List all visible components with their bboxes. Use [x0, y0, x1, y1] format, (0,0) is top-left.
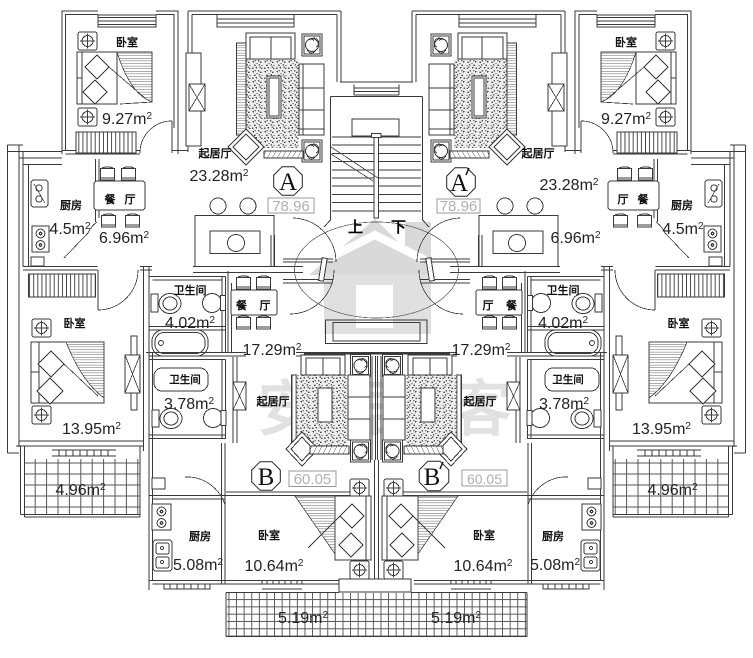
svg-text:10.64m2: 10.64m2	[454, 558, 513, 575]
svg-text:13.95m2: 13.95m2	[632, 421, 691, 438]
svg-text:餐: 餐	[235, 298, 248, 312]
svg-text:厅: 厅	[260, 299, 271, 312]
svg-text:卧室: 卧室	[668, 316, 690, 330]
svg-text:5.19m2: 5.19m2	[278, 610, 328, 627]
svg-text:起居厅: 起居厅	[521, 146, 555, 160]
svg-text:5.08m2: 5.08m2	[173, 557, 223, 574]
svg-text:10.64m2: 10.64m2	[245, 558, 304, 575]
svg-text:9.27m2: 9.27m2	[601, 111, 651, 128]
svg-text:卫生间: 卫生间	[174, 283, 207, 297]
svg-text:60.05: 60.05	[294, 471, 332, 488]
svg-text:下: 下	[391, 219, 406, 236]
svg-text:起居厅: 起居厅	[198, 146, 232, 160]
svg-text:厨房: 厨房	[60, 198, 82, 212]
svg-text:5.08m2: 5.08m2	[530, 557, 580, 574]
svg-text:17.29m2: 17.29m2	[452, 342, 511, 359]
svg-text:餐: 餐	[104, 192, 117, 206]
svg-text:卧室: 卧室	[615, 35, 637, 49]
svg-text:23.28m2: 23.28m2	[190, 168, 249, 185]
svg-text:6.96m2: 6.96m2	[99, 230, 149, 247]
svg-text:17.29m2: 17.29m2	[243, 342, 302, 359]
svg-text:厨房: 厨房	[189, 529, 211, 543]
svg-text:B: B	[258, 464, 275, 491]
svg-text:上: 上	[348, 219, 363, 236]
svg-text:A: A	[450, 170, 468, 197]
svg-text:4.5m2: 4.5m2	[662, 221, 704, 238]
svg-text:卫生间: 卫生间	[552, 373, 584, 386]
svg-text:3.78m2: 3.78m2	[164, 396, 214, 413]
svg-text:A: A	[279, 169, 297, 196]
svg-text:厨房: 厨房	[542, 529, 564, 543]
svg-text:6.96m2: 6.96m2	[550, 230, 600, 247]
svg-text:4.5m2: 4.5m2	[49, 221, 91, 238]
svg-text:5.19m2: 5.19m2	[431, 610, 481, 627]
svg-text:9.27m2: 9.27m2	[102, 111, 152, 128]
svg-text:4.02m2: 4.02m2	[538, 315, 588, 332]
svg-text:餐: 餐	[637, 192, 650, 206]
svg-text:厨房: 厨房	[671, 198, 693, 212]
svg-text:厅: 厅	[483, 299, 494, 312]
svg-text:厅: 厅	[618, 193, 629, 206]
svg-text:卧室: 卧室	[64, 316, 86, 330]
svg-text:4.96m2: 4.96m2	[647, 482, 697, 499]
svg-text:23.28m2: 23.28m2	[540, 177, 599, 194]
svg-text:起居厅: 起居厅	[256, 394, 290, 408]
svg-text:卫生间: 卫生间	[547, 283, 580, 297]
svg-text:4.96m2: 4.96m2	[55, 482, 105, 499]
svg-text:卫生间: 卫生间	[169, 373, 201, 386]
svg-text:78.96: 78.96	[272, 198, 310, 215]
svg-text:78.96: 78.96	[440, 198, 478, 215]
svg-text:4.02m2: 4.02m2	[165, 315, 215, 332]
svg-text:B: B	[424, 464, 441, 491]
svg-text:60.05: 60.05	[467, 471, 502, 487]
svg-text:餐: 餐	[505, 298, 518, 312]
svg-text:厅: 厅	[125, 193, 136, 206]
svg-text:卧室: 卧室	[473, 528, 495, 542]
svg-text:卧室: 卧室	[116, 35, 138, 49]
svg-text:卧室: 卧室	[258, 528, 280, 542]
svg-text:13.95m2: 13.95m2	[62, 421, 121, 438]
svg-text:3.78m2: 3.78m2	[539, 396, 589, 413]
svg-text:起居厅: 起居厅	[463, 394, 497, 408]
